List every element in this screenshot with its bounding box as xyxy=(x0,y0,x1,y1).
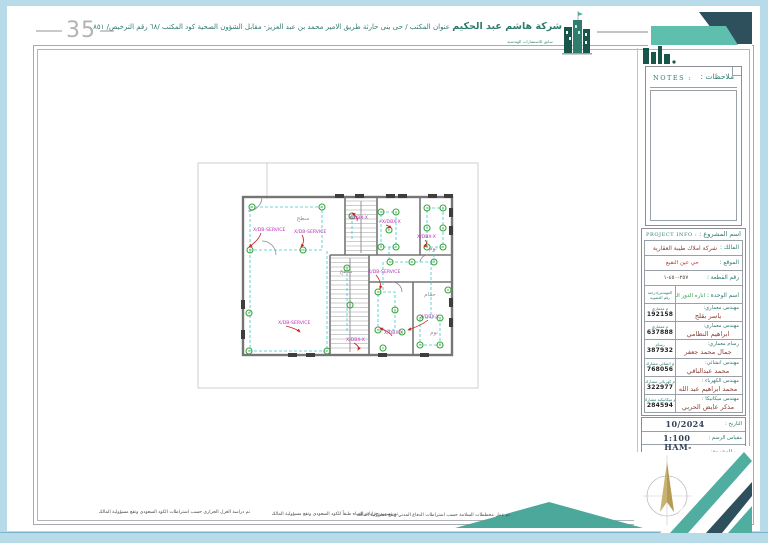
wiring-line xyxy=(250,250,327,351)
notes-empty-area xyxy=(650,90,737,221)
location-value: حي عين النقيع xyxy=(648,260,717,266)
notes-label-en: NOTES : xyxy=(653,74,692,82)
circuit-label: +X/DBX-X xyxy=(378,219,401,225)
light-fixture-center xyxy=(442,207,443,208)
sidebar-logo-icon xyxy=(641,46,683,66)
location-row: الموقع : حي عين النقيع xyxy=(645,256,742,271)
engineer-name: جمال محمد جعفر xyxy=(677,348,739,357)
engineer-role: مهندس ميكانيكا : xyxy=(677,396,739,403)
unit-label: اسم الوحدة : xyxy=(707,293,739,299)
engineer-cell: مهندس ميكانيكا :مذكر عايض الحربي xyxy=(676,395,742,412)
room-label: سطح xyxy=(340,269,353,275)
light-fixture-center xyxy=(426,246,427,247)
project-info-rows: المالك : شركة املاك طيبة العقارية الموقع… xyxy=(644,240,743,286)
footer-note-safety: تم عمل مخططات السلامة حسب اشتراطات الدفا… xyxy=(418,513,510,518)
engineer-row: مهندس الكهرباء :محمد ابراهيم عبد اللهم ك… xyxy=(645,377,742,395)
membership-header-line2: رقم العضوية xyxy=(650,295,670,300)
circuit-label: X/DBX-X xyxy=(384,330,403,336)
light-fixture-center xyxy=(439,317,440,318)
light-fixture-center xyxy=(377,329,378,330)
plot-value: ٢٥٧-٤٥٠-١ xyxy=(648,275,704,281)
light-fixture-center xyxy=(395,246,396,247)
membership-cell: م انشائي مشارك768056 xyxy=(645,359,676,376)
notes-label-ar: ملاحظات : xyxy=(700,72,734,81)
floor-plan-drawing: X/DB-SERVICEX/DB-SERVICEX/DBX-X+X/DBX-XX… xyxy=(185,148,495,398)
engineer-row: مهندس معماري:ابراهيم النظاميم معماري6378… xyxy=(645,322,742,340)
light-fixture-center xyxy=(426,227,427,228)
owner-label: المالك : xyxy=(720,245,739,251)
engineer-name: ابراهيم النظامي xyxy=(677,330,739,339)
engineers-header-row: اسم الوحدة : اناره الدور الرابع المهندس/… xyxy=(645,286,742,304)
leader-arrow xyxy=(286,326,300,332)
room-label: حمام xyxy=(424,292,436,298)
project-info-box: PROJECT INFO : اسم المشروع : المالك : شر… xyxy=(641,228,746,416)
date-value: 10/2024 xyxy=(645,419,725,429)
company-info: عنوان المكتب / حى بنى حارثة طريق الامير … xyxy=(93,23,450,31)
membership-cell: رسام387932 xyxy=(645,340,676,357)
light-fixture-center xyxy=(249,249,250,250)
corner-stripes xyxy=(660,446,752,533)
engineer-name: ياسر بقلج xyxy=(677,312,739,321)
date-row: التاريخ : 10/2024 xyxy=(642,418,745,432)
dash-line xyxy=(36,30,62,32)
notes-rule xyxy=(650,87,737,88)
membership-cell: م ميكانيكية مشارك284594 xyxy=(645,395,676,412)
light-fixture-center xyxy=(447,289,448,290)
light-fixture-center xyxy=(380,211,381,212)
room-label: نوم xyxy=(430,330,438,336)
room-label: سطح xyxy=(297,216,310,222)
leader-arrow xyxy=(408,320,428,330)
light-fixture-center xyxy=(388,229,389,230)
membership-number: 637888 xyxy=(647,329,673,337)
light-fixture-center xyxy=(321,206,322,207)
engineer-cell: مهندس الكهرباء :محمد ابراهيم عبد الله xyxy=(676,377,742,394)
light-fixture-center xyxy=(382,347,383,348)
engineer-cell: مهندس معماري:ابراهيم النظامي xyxy=(676,322,742,339)
light-fixture-center xyxy=(395,211,396,212)
circuit-label: X/DBX-X xyxy=(349,215,368,221)
engineer-name: مذكر عايض الحربي xyxy=(677,403,739,412)
company-header: شركة هاشم عبد الحكيم عنوان المكتب / حى ب… xyxy=(80,22,562,32)
engineer-row: رسام معماري:جمال محمد جعفررسام387932 xyxy=(645,340,742,358)
engineer-row: مهندس انشائي:محمد عبدالباقيم انشائي مشار… xyxy=(645,359,742,377)
circuit-label: X/DBX-X xyxy=(420,314,439,320)
company-buildings-logo-icon xyxy=(556,11,596,59)
engineer-role: مهندس معماري: xyxy=(677,305,739,312)
plan-labels: X/DB-SERVICEX/DB-SERVICEX/DBX-X+X/DBX-XX… xyxy=(253,215,439,343)
membership-number: 284594 xyxy=(647,402,673,410)
light-fixture-center xyxy=(349,304,350,305)
engineer-role: رسام معماري: xyxy=(677,341,739,348)
light-fixture-center xyxy=(380,246,381,247)
engineer-role: مهندس الكهرباء : xyxy=(677,378,739,385)
membership-cell: م معماري192158 xyxy=(645,304,676,321)
light-fixture-center xyxy=(377,291,378,292)
circuit-label: X/DBX-X xyxy=(346,337,365,343)
light-fixture-center xyxy=(411,261,412,262)
circuit-label: X/DB-SERVICE xyxy=(368,269,401,275)
location-label: الموقع : xyxy=(720,260,739,266)
circuit-label: X/DB-SERVICE xyxy=(294,229,327,235)
membership-number: 322977 xyxy=(647,384,673,392)
engineer-role: مهندس معماري: xyxy=(677,323,739,330)
project-info-label-en: PROJECT INFO : xyxy=(646,232,697,238)
light-fixture-center xyxy=(442,227,443,228)
membership-header-cell: المهندس/درجته رقم العضوية xyxy=(645,286,676,303)
engineer-name: محمد عبدالباقي xyxy=(677,367,739,376)
door-swings xyxy=(248,197,428,292)
membership-cell: م كهربائي مشارك322977 xyxy=(645,377,676,394)
light-fixture-center xyxy=(419,344,420,345)
footer-note-thermal: تم دراسة العزل الحراري حسب اشتراطات الكو… xyxy=(100,510,250,515)
leader-arrow xyxy=(249,233,261,247)
bottom-decoration xyxy=(0,440,768,543)
light-fixture-center xyxy=(442,246,443,247)
light-fixture-center xyxy=(389,261,390,262)
unit-cell: اسم الوحدة : اناره الدور الرابع xyxy=(676,286,742,303)
project-info-label-ar: اسم المشروع : xyxy=(699,230,741,238)
light-fixture-center xyxy=(426,207,427,208)
wiring-line xyxy=(381,212,396,247)
membership-number: 387932 xyxy=(647,347,673,355)
membership-cell: م معماري637888 xyxy=(645,322,676,339)
plot-row: رقم القطعة : ٢٥٧-٤٥٠-١ xyxy=(645,271,742,285)
light-fixture-center xyxy=(439,344,440,345)
engineers-table: اسم الوحدة : اناره الدور الرابع المهندس/… xyxy=(644,285,743,413)
light-fixture-center xyxy=(302,249,303,250)
company-subtitle: سابق للاستشارات الهندسية xyxy=(500,39,560,44)
light-fixture-center xyxy=(326,350,327,351)
light-fixture-center xyxy=(394,309,395,310)
date-label: التاريخ : xyxy=(725,421,742,427)
unit-value: اناره الدور الرابع xyxy=(676,293,705,299)
membership-number: 192158 xyxy=(647,311,673,319)
circuit-label: X/DB-SERVICE xyxy=(253,227,286,233)
circuit-label: X/DB-SERVICE xyxy=(278,320,311,326)
engineer-row: مهندس ميكانيكا :مذكر عايض الحربيم ميكاني… xyxy=(645,395,742,412)
circuit-label: X/DBX-X xyxy=(417,234,436,240)
owner-value: شركة املاك طيبة العقارية xyxy=(653,245,717,252)
company-name: شركة هاشم عبد الحكيم xyxy=(452,21,562,32)
membership-number: 768056 xyxy=(647,366,673,374)
engineer-name: محمد ابراهيم عبد الله xyxy=(677,385,739,394)
light-fixture-center xyxy=(248,350,249,351)
light-fixture-center xyxy=(248,312,249,313)
leader-arrow xyxy=(354,343,359,350)
plot-label: رقم القطعة : xyxy=(707,275,739,281)
owner-row: المالك : شركة املاك طيبة العقارية xyxy=(645,241,742,256)
engineer-role: مهندس انشائي: xyxy=(677,360,739,367)
engineer-row: مهندس معماري:ياسر بقلجم معماري192158 xyxy=(645,304,742,322)
engineer-cell: رسام معماري:جمال محمد جعفر xyxy=(676,340,742,357)
notes-box: NOTES : ملاحظات : xyxy=(645,66,742,226)
engineer-cell: مهندس معماري:ياسر بقلج xyxy=(676,304,742,321)
light-fixture-center xyxy=(433,261,434,262)
light-fixture-center xyxy=(251,206,252,207)
leader-arrow xyxy=(301,235,304,247)
engineer-cell: مهندس انشائي:محمد عبدالباقي xyxy=(676,359,742,376)
room-label: نوم xyxy=(429,246,437,252)
